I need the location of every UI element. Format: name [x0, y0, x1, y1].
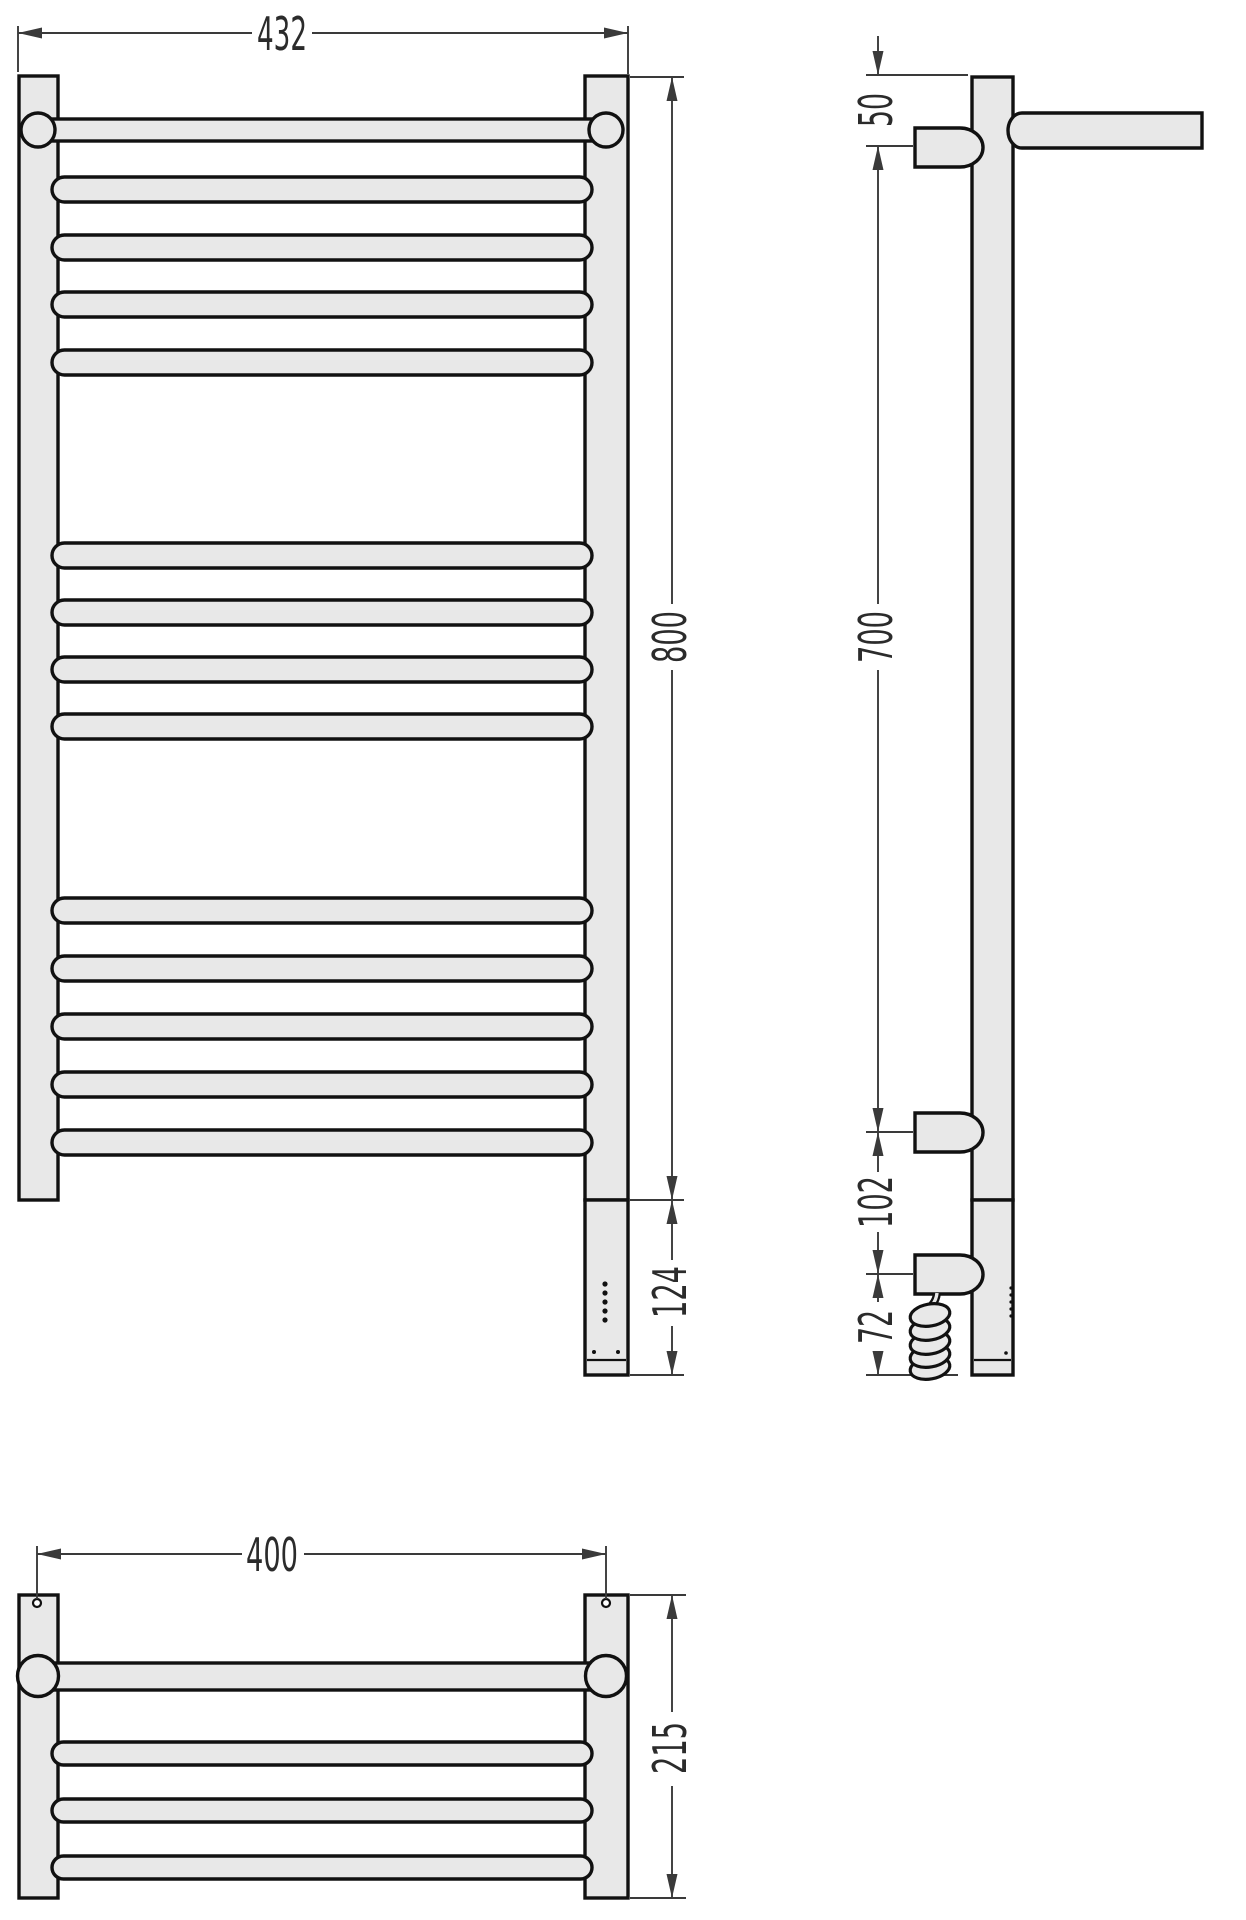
- side-top-rail: [1008, 113, 1202, 148]
- mounting-hole: [33, 1599, 41, 1607]
- plan-top-rail: [38, 1663, 606, 1690]
- arrowhead: [604, 28, 628, 39]
- arrowhead: [37, 1549, 61, 1560]
- dimension-width-432: 432: [18, 7, 628, 74]
- mounting-hole: [602, 1599, 610, 1607]
- arrowhead: [667, 1200, 678, 1224]
- rung: [52, 1799, 592, 1822]
- dimension-lower-span-102: 102: [849, 1132, 913, 1274]
- rung: [52, 543, 592, 568]
- arrowhead: [667, 1874, 678, 1898]
- rung: [52, 1072, 592, 1097]
- rung: [52, 350, 592, 375]
- arrowhead: [873, 146, 884, 170]
- wall-bracket: [915, 1255, 983, 1294]
- rung: [52, 1014, 592, 1039]
- dimension-heater-124: 124: [630, 1200, 697, 1375]
- rung: [52, 177, 592, 202]
- dim-label-top-offset: 50: [849, 93, 903, 127]
- arrowhead: [18, 28, 42, 39]
- top-rail: [38, 119, 606, 141]
- collector-cap: [18, 1656, 59, 1697]
- dim-label-lower-span: 102: [849, 1176, 903, 1228]
- arrowhead: [667, 77, 678, 101]
- arrowhead: [667, 1351, 678, 1375]
- arrowhead: [873, 1274, 884, 1298]
- heater-box: [585, 1200, 628, 1375]
- arrowhead: [873, 1108, 884, 1132]
- dim-label-cable-span: 72: [849, 1310, 903, 1344]
- dim-label-front-width: 432: [257, 7, 307, 61]
- collector-cap: [586, 1656, 627, 1697]
- dim-label-mounting-width: 400: [246, 1528, 298, 1582]
- wall-bracket: [915, 1113, 983, 1152]
- arrowhead: [667, 1176, 678, 1200]
- dim-label-heater-height: 124: [643, 1266, 697, 1318]
- arrowhead: [873, 51, 884, 75]
- rung: [52, 657, 592, 682]
- dim-label-depth: 215: [643, 1722, 697, 1774]
- arrowhead: [873, 1250, 884, 1274]
- rung: [52, 714, 592, 739]
- arrowhead: [873, 1132, 884, 1156]
- top-view: 400 215: [18, 1528, 698, 1898]
- rung: [52, 956, 592, 981]
- drawing-canvas: 432 800 124: [0, 0, 1246, 1920]
- arrowhead: [582, 1549, 606, 1560]
- side-view: 50 700 102 72: [849, 36, 1202, 1382]
- side-post: [972, 77, 1013, 1200]
- dim-label-bracket-span: 700: [849, 611, 903, 663]
- arrowhead: [873, 1351, 884, 1375]
- rung: [52, 1742, 592, 1765]
- collector-cap: [589, 113, 623, 147]
- rung: [52, 1130, 592, 1155]
- collector-cap: [21, 113, 55, 147]
- rung: [52, 600, 592, 625]
- towel-rail-technical-drawing: 432 800 124: [0, 0, 1246, 1920]
- dim-label-front-height: 800: [643, 611, 697, 663]
- rung: [52, 292, 592, 317]
- dimension-height-800: 800: [630, 77, 697, 1200]
- power-cable-coil: [908, 1293, 951, 1382]
- wall-bracket: [915, 128, 983, 167]
- dimension-bracket-span-700: 700: [849, 146, 903, 1132]
- rung: [52, 898, 592, 923]
- rung: [52, 1856, 592, 1879]
- dimension-depth-215: 215: [630, 1595, 697, 1898]
- dimension-mounting-width-400: 400: [37, 1528, 606, 1599]
- plan-left-post: [19, 1595, 58, 1898]
- rung: [52, 235, 592, 260]
- front-view: 432 800 124: [18, 7, 697, 1375]
- arrowhead: [667, 1595, 678, 1619]
